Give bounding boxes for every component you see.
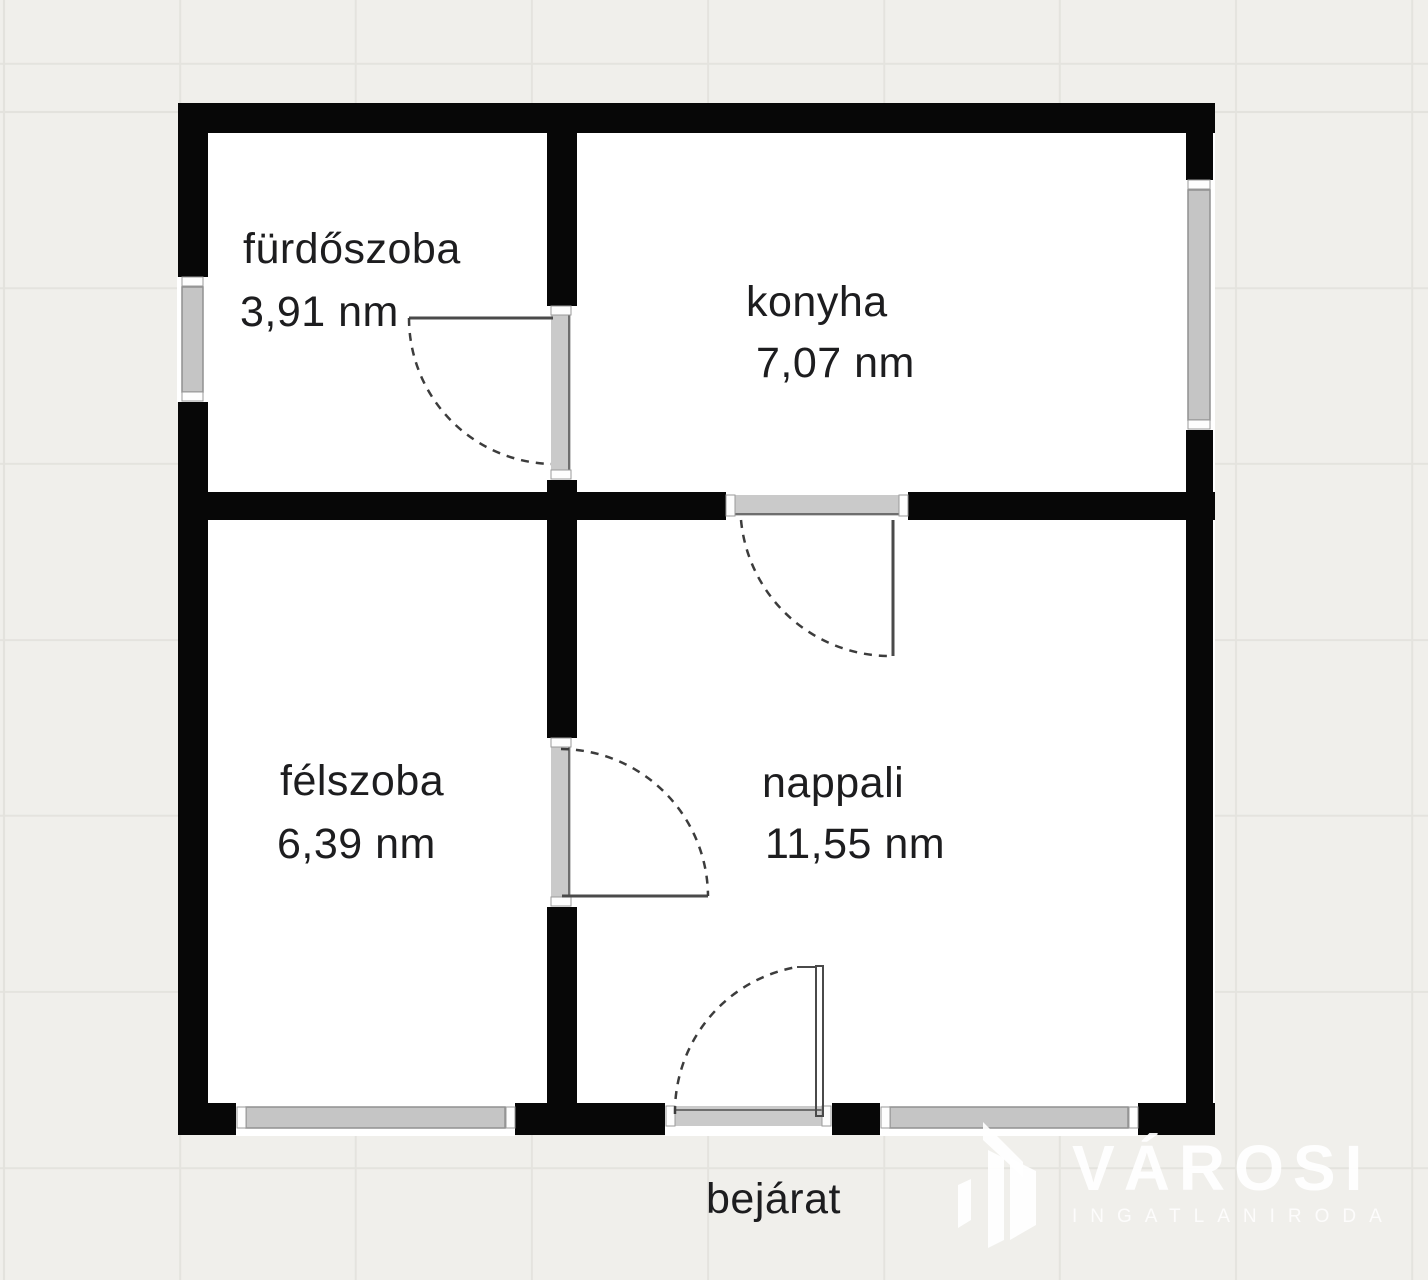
wall-divider-vertical [547, 103, 577, 1135]
brand-name: VÁROSI [1072, 1136, 1395, 1200]
room-name-kitchen: konyha [746, 279, 888, 325]
entrance-label: bejárat [706, 1176, 841, 1222]
room-name-halfroom: félszoba [280, 758, 444, 804]
window-bathroom [182, 287, 203, 392]
logo-block-small [958, 1179, 971, 1228]
room-area-kitchen: 7,07 nm [756, 340, 915, 386]
watermark: VÁROSI INGATLANIRODA [1072, 1136, 1395, 1228]
room-area-bathroom: 3,91 nm [240, 289, 399, 335]
window-kitchen [1188, 190, 1210, 420]
logo-block-tall [988, 1150, 1004, 1248]
floor-plan-page: fürdőszoba 3,91 nm konyha 7,07 nm félszo… [0, 0, 1428, 1280]
wall-middle-horizontal [178, 492, 1215, 520]
room-name-bathroom: fürdőszoba [243, 226, 461, 272]
brand-tagline: INGATLANIRODA [1072, 1206, 1395, 1228]
window-halfroom [246, 1107, 505, 1128]
floor-plan-svg [0, 0, 1428, 1280]
wall-top [178, 103, 1215, 133]
wall-left [178, 103, 208, 1135]
logo-block-right [1010, 1158, 1036, 1240]
brand-logo-icon [950, 1112, 1042, 1252]
room-name-livingroom: nappali [762, 760, 904, 806]
room-area-halfroom: 6,39 nm [277, 821, 436, 867]
room-area-livingroom: 11,55 nm [765, 821, 945, 867]
door-threshold-kitchen [734, 495, 900, 516]
